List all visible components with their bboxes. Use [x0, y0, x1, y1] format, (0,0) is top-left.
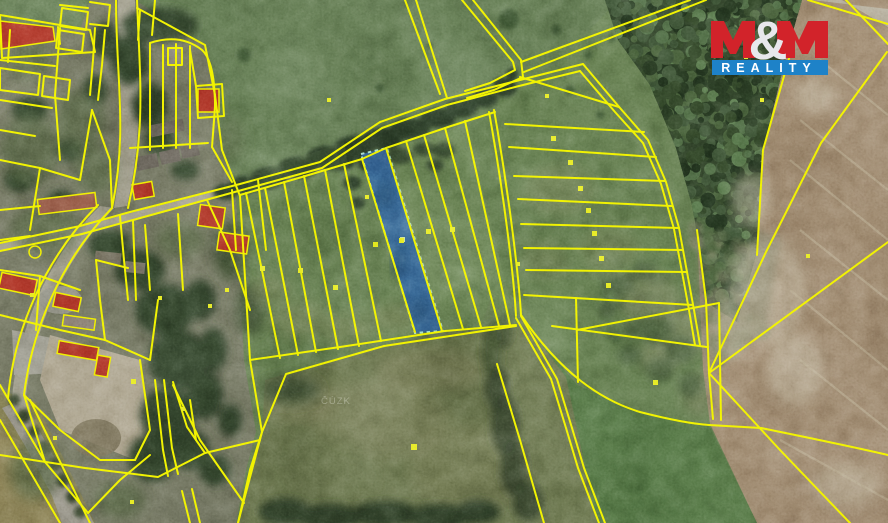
svg-text:REALITY: REALITY — [721, 61, 816, 75]
